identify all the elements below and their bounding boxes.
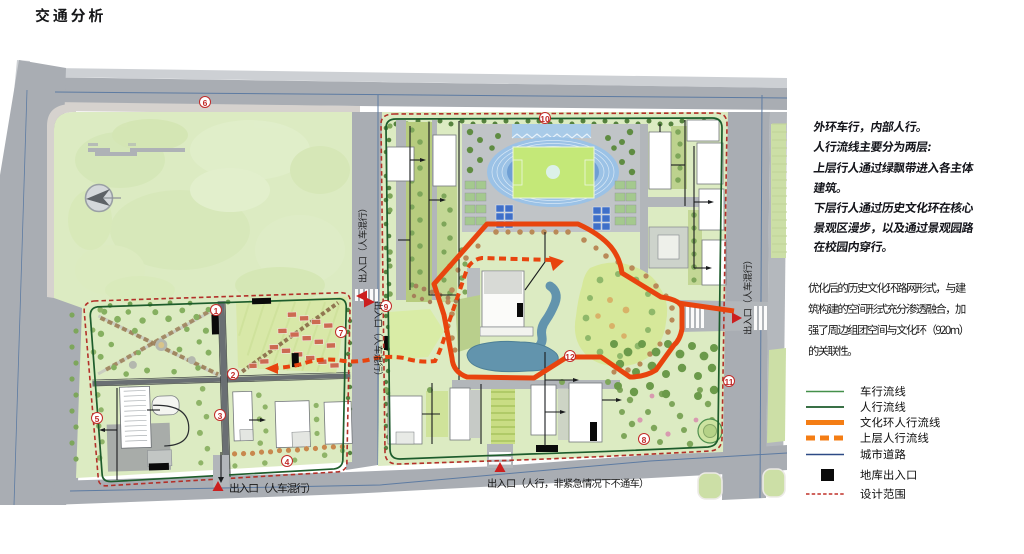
svg-text:2: 2: [231, 370, 236, 380]
svg-text:4: 4: [285, 457, 290, 467]
svg-text:9: 9: [384, 302, 389, 312]
svg-text:8: 8: [642, 435, 647, 445]
svg-text:10: 10: [540, 114, 550, 124]
svg-text:7: 7: [339, 328, 344, 338]
svg-text:3: 3: [218, 411, 223, 421]
svg-text:1: 1: [214, 306, 219, 316]
svg-text:6: 6: [203, 98, 208, 108]
svg-text:12: 12: [565, 352, 575, 362]
svg-text:11: 11: [725, 377, 734, 387]
svg-text:5: 5: [95, 414, 100, 424]
